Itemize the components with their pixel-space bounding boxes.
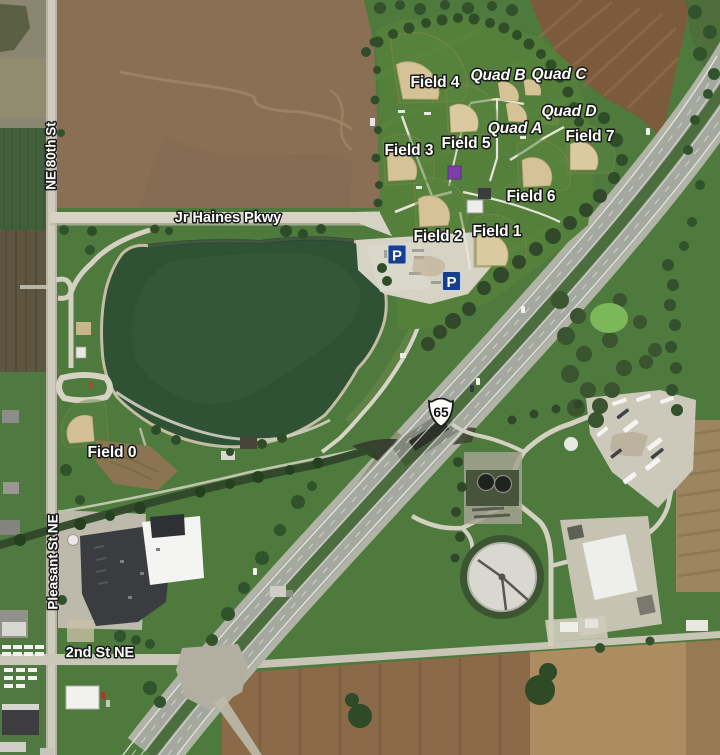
svg-text:Quad A: Quad A bbox=[488, 120, 543, 137]
svg-text:Field 2: Field 2 bbox=[413, 228, 462, 245]
svg-text:P: P bbox=[446, 274, 456, 291]
svg-text:Field 6: Field 6 bbox=[506, 188, 555, 205]
svg-text:2nd St NE: 2nd St NE bbox=[66, 645, 135, 661]
svg-text:Field 7: Field 7 bbox=[565, 128, 614, 145]
svg-text:P: P bbox=[392, 248, 402, 265]
svg-text:Field 4: Field 4 bbox=[410, 74, 459, 91]
svg-text:Quad B: Quad B bbox=[470, 67, 525, 84]
svg-text:NE 80th St: NE 80th St bbox=[44, 122, 59, 190]
svg-text:Pleasant St NE: Pleasant St NE bbox=[46, 514, 61, 609]
svg-text:Quad C: Quad C bbox=[531, 66, 587, 83]
svg-text:65: 65 bbox=[433, 405, 449, 420]
svg-text:Quad D: Quad D bbox=[541, 103, 596, 120]
svg-text:Field 5: Field 5 bbox=[441, 135, 490, 152]
svg-text:Jr Haines Pkwy: Jr Haines Pkwy bbox=[175, 210, 281, 226]
svg-text:Field 1: Field 1 bbox=[472, 223, 521, 240]
svg-text:Field 0: Field 0 bbox=[87, 444, 136, 461]
svg-text:Field 3: Field 3 bbox=[384, 142, 433, 159]
